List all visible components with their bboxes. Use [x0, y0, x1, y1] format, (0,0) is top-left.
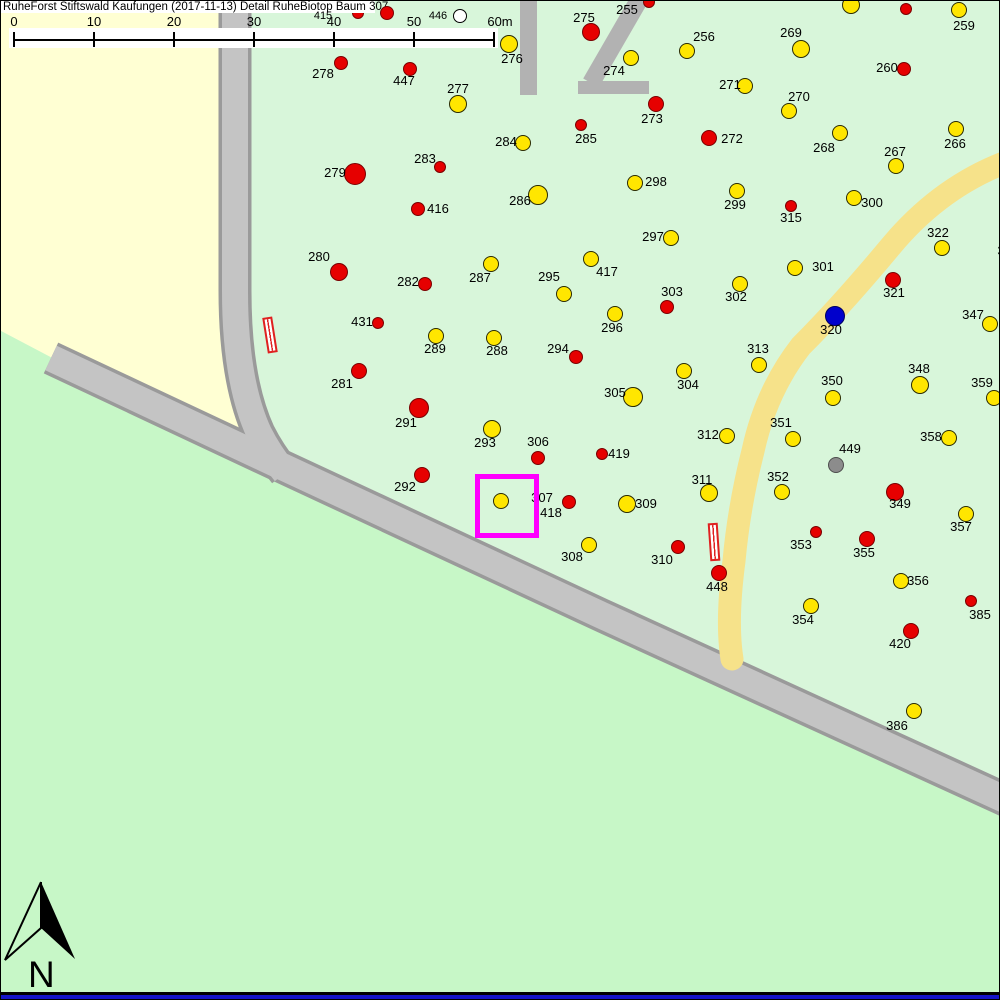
- scale-number: 10: [87, 14, 101, 29]
- selected-tree-box[interactable]: [475, 474, 539, 538]
- tree-label-260: 260: [876, 61, 898, 74]
- tree-label-351: 351: [770, 416, 792, 429]
- tree-label-282: 282: [397, 275, 419, 288]
- tree-marker-275[interactable]: [582, 23, 600, 41]
- tree-label-358: 358: [920, 430, 942, 443]
- tree-marker-256[interactable]: [679, 43, 695, 59]
- north-label: N: [28, 954, 55, 996]
- tree-label-355: 355: [853, 546, 875, 559]
- tree-label-274: 274: [603, 64, 625, 77]
- tree-label-294: 294: [547, 342, 569, 355]
- tree-marker-348[interactable]: [911, 376, 929, 394]
- tree-label-309: 309: [635, 497, 657, 510]
- tree-marker-308[interactable]: [581, 537, 597, 553]
- tree-marker-268[interactable]: [832, 125, 848, 141]
- trail-yellow: [729, 161, 1000, 659]
- tree-label-289: 289: [424, 342, 446, 355]
- tree-label-315: 315: [780, 211, 802, 224]
- tree-marker-270[interactable]: [781, 103, 797, 119]
- tree-label-293: 293: [474, 436, 496, 449]
- scale-number: 20: [167, 14, 181, 29]
- tree-label-300: 300: [861, 196, 883, 209]
- tree-marker-385[interactable]: [965, 595, 977, 607]
- tree-label-352: 352: [767, 470, 789, 483]
- tree-marker-446[interactable]: [453, 9, 467, 23]
- tree-label-322: 322: [927, 226, 949, 239]
- tree-label-306: 306: [527, 435, 549, 448]
- tree-label-273: 273: [641, 112, 663, 125]
- tree-marker-297[interactable]: [663, 230, 679, 246]
- tree-label-256: 256: [693, 30, 715, 43]
- tree-label-286: 286: [509, 194, 531, 207]
- tree-marker-298[interactable]: [627, 175, 643, 191]
- tree-label-420: 420: [889, 637, 911, 650]
- tree-marker-419[interactable]: [596, 448, 608, 460]
- tree-marker-278[interactable]: [334, 56, 348, 70]
- tree-label-272: 272: [721, 132, 743, 145]
- tree-marker-292[interactable]: [414, 467, 430, 483]
- tree-label-287: 287: [469, 271, 491, 284]
- tree-marker-273[interactable]: [648, 96, 664, 112]
- tree-label-277: 277: [447, 82, 469, 95]
- tree-label-259: 259: [953, 19, 975, 32]
- scale-number: 0: [10, 14, 17, 29]
- scale-tick: [333, 32, 335, 47]
- tree-marker-418[interactable]: [562, 495, 576, 509]
- tree-label-276: 276: [501, 52, 523, 65]
- tree-label-291: 291: [395, 416, 417, 429]
- tree-label-299: 299: [724, 198, 746, 211]
- tree-marker-303[interactable]: [660, 300, 674, 314]
- tree-label-295: 295: [538, 270, 560, 283]
- tree-label-416: 416: [427, 202, 449, 215]
- tree-marker-359[interactable]: [986, 390, 1000, 406]
- tree-label-280: 280: [308, 250, 330, 263]
- scale-tick: [493, 32, 495, 47]
- tree-marker-267[interactable]: [888, 158, 904, 174]
- tree-label-288: 288: [486, 344, 508, 357]
- tree-label-350: 350: [821, 374, 843, 387]
- tree-label-303: 303: [661, 285, 683, 298]
- tree-label-417: 417: [596, 265, 618, 278]
- tree-label-431: 431: [351, 315, 373, 328]
- tree-label-385: 385: [969, 608, 991, 621]
- tree-label-270: 270: [788, 90, 810, 103]
- tree-marker-358[interactable]: [941, 430, 957, 446]
- tree-label-266: 266: [944, 137, 966, 150]
- tree-label-448: 448: [706, 580, 728, 593]
- scale-number: 50: [407, 14, 421, 29]
- tree-label-321: 321: [883, 286, 905, 299]
- tree-label-449: 449: [839, 442, 861, 455]
- tree-marker-351[interactable]: [785, 431, 801, 447]
- tree-label-311: 311: [692, 473, 713, 486]
- tree-marker-350[interactable]: [825, 390, 841, 406]
- tree-marker-286[interactable]: [528, 185, 548, 205]
- scale-tick: [253, 32, 255, 47]
- tree-marker-309[interactable]: [618, 495, 636, 513]
- tree-label-347: 347: [962, 308, 984, 321]
- tree-marker-306[interactable]: [531, 451, 545, 465]
- tree-marker-272[interactable]: [701, 130, 717, 146]
- tree-label-255: 255: [616, 3, 638, 16]
- tree-marker-312[interactable]: [719, 428, 735, 444]
- tree-label-278: 278: [312, 67, 334, 80]
- tree-marker-259[interactable]: [951, 2, 967, 18]
- tree-marker[interactable]: [900, 3, 912, 15]
- tree-label-297: 297: [642, 230, 664, 243]
- tree-marker-294[interactable]: [569, 350, 583, 364]
- tree-label-296: 296: [601, 321, 623, 334]
- tree-label-354: 354: [792, 613, 814, 626]
- tree-label-386: 386: [886, 719, 908, 732]
- tree-marker-274[interactable]: [623, 50, 639, 66]
- tree-label-359: 359: [971, 376, 993, 389]
- tree-label-313: 313: [747, 342, 769, 355]
- tree-marker-285[interactable]: [575, 119, 587, 131]
- tree-label-308: 308: [561, 550, 583, 563]
- tree-marker-279[interactable]: [344, 163, 366, 185]
- tree-label-356: 356: [907, 574, 929, 587]
- tree-label-310: 310: [651, 553, 673, 566]
- tree-marker-347[interactable]: [982, 316, 998, 332]
- tree-marker-284[interactable]: [515, 135, 531, 151]
- tree-label-419: 419: [608, 447, 630, 460]
- tree-label-446: 446: [429, 10, 447, 23]
- tree-label-349: 349: [889, 497, 911, 510]
- tree-label-320: 320: [820, 323, 842, 336]
- tree-marker-280[interactable]: [330, 263, 348, 281]
- tree-marker-449[interactable]: [828, 457, 844, 473]
- tree-label-415: 415: [314, 10, 332, 23]
- tree-marker-295[interactable]: [556, 286, 572, 302]
- scale-number: 30: [247, 14, 261, 29]
- tree-label-283: 283: [414, 152, 436, 165]
- tree-marker-352[interactable]: [774, 484, 790, 500]
- tree-label-268: 268: [813, 141, 835, 154]
- tree-label-353: 353: [790, 538, 812, 551]
- tree-label-301: 301: [812, 260, 834, 273]
- tree-label-271: 271: [719, 78, 741, 91]
- tree-label-447: 447: [393, 74, 415, 87]
- tree-marker-305[interactable]: [623, 387, 643, 407]
- tree-label-298: 298: [645, 175, 667, 188]
- tree-marker-301[interactable]: [787, 260, 803, 276]
- tree-label-269: 269: [780, 26, 802, 39]
- tree-marker-313[interactable]: [751, 357, 767, 373]
- tree-marker-260[interactable]: [897, 62, 911, 76]
- tree-label-418: 418: [540, 506, 562, 519]
- tree-marker-282[interactable]: [418, 277, 432, 291]
- map-canvas[interactable]: RuheForst Stiftswald Kaufungen (2017-11-…: [0, 0, 1000, 1000]
- tree-label-281: 281: [331, 377, 353, 390]
- scale-tick: [413, 32, 415, 47]
- tree-marker-266[interactable]: [948, 121, 964, 137]
- scale-tick: [13, 32, 15, 47]
- tree-label-285: 285: [575, 132, 597, 145]
- tree-label-312: 312: [697, 428, 719, 441]
- tree-label-302: 302: [725, 290, 747, 303]
- tree-label-357: 357: [950, 520, 972, 533]
- tree-marker[interactable]: [380, 6, 394, 20]
- tree-marker-310[interactable]: [671, 540, 685, 554]
- tree-label-348: 348: [908, 362, 930, 375]
- window-bottom-bar: [1, 995, 1000, 999]
- tree-marker-277[interactable]: [449, 95, 467, 113]
- tree-label-305: 305: [604, 386, 626, 399]
- tree-marker-386[interactable]: [906, 703, 922, 719]
- scale-tick: [173, 32, 175, 47]
- tree-label-275: 275: [573, 11, 595, 24]
- tree-marker-269[interactable]: [792, 40, 810, 58]
- tree-marker-431[interactable]: [372, 317, 384, 329]
- tree-marker-416[interactable]: [411, 202, 425, 216]
- tree-marker-300[interactable]: [846, 190, 862, 206]
- scale-tick: [93, 32, 95, 47]
- tree-label-279: 279: [324, 166, 346, 179]
- tree-label-304: 304: [677, 378, 699, 391]
- tree-marker-281[interactable]: [351, 363, 367, 379]
- tree-marker-322[interactable]: [934, 240, 950, 256]
- tree-label-292: 292: [394, 480, 416, 493]
- tree-label-284: 284: [495, 135, 517, 148]
- scale-number: 60m: [487, 14, 512, 29]
- road-vertical: [235, 1, 285, 473]
- tree-label-267: 267: [884, 145, 906, 158]
